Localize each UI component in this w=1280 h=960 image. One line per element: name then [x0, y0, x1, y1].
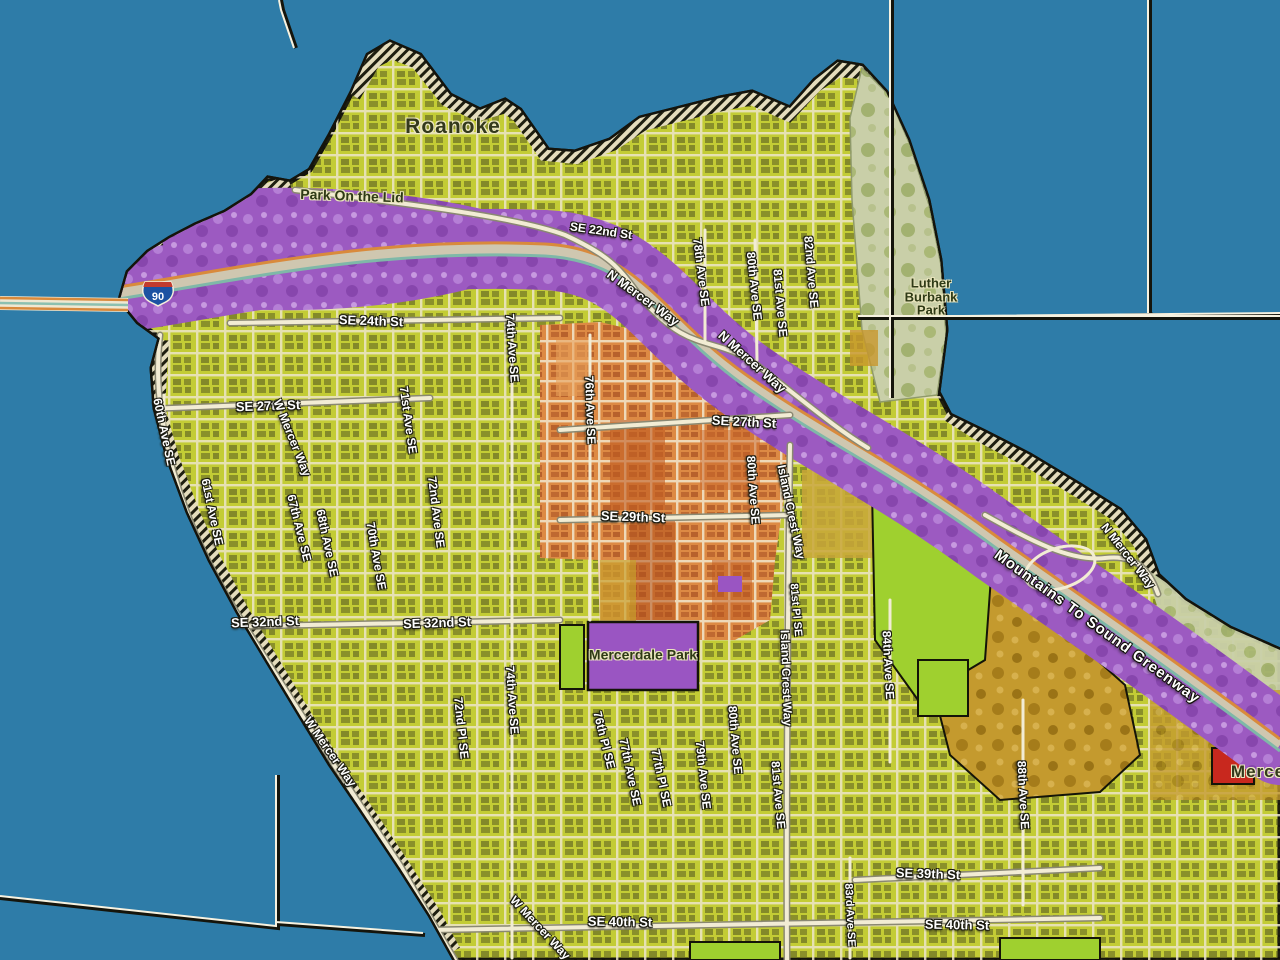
shield-number: 90: [152, 291, 164, 303]
i90-bridge: [0, 298, 128, 310]
zoning-map: [0, 0, 1280, 960]
map-canvas[interactable]: 90 RoanokePark On the LidSE 22nd StLuthe…: [0, 0, 1280, 960]
small-purple-parcel: [718, 576, 742, 592]
mercerdale-park-area: [588, 622, 698, 690]
i90-interstate-shield: 90: [142, 281, 174, 307]
